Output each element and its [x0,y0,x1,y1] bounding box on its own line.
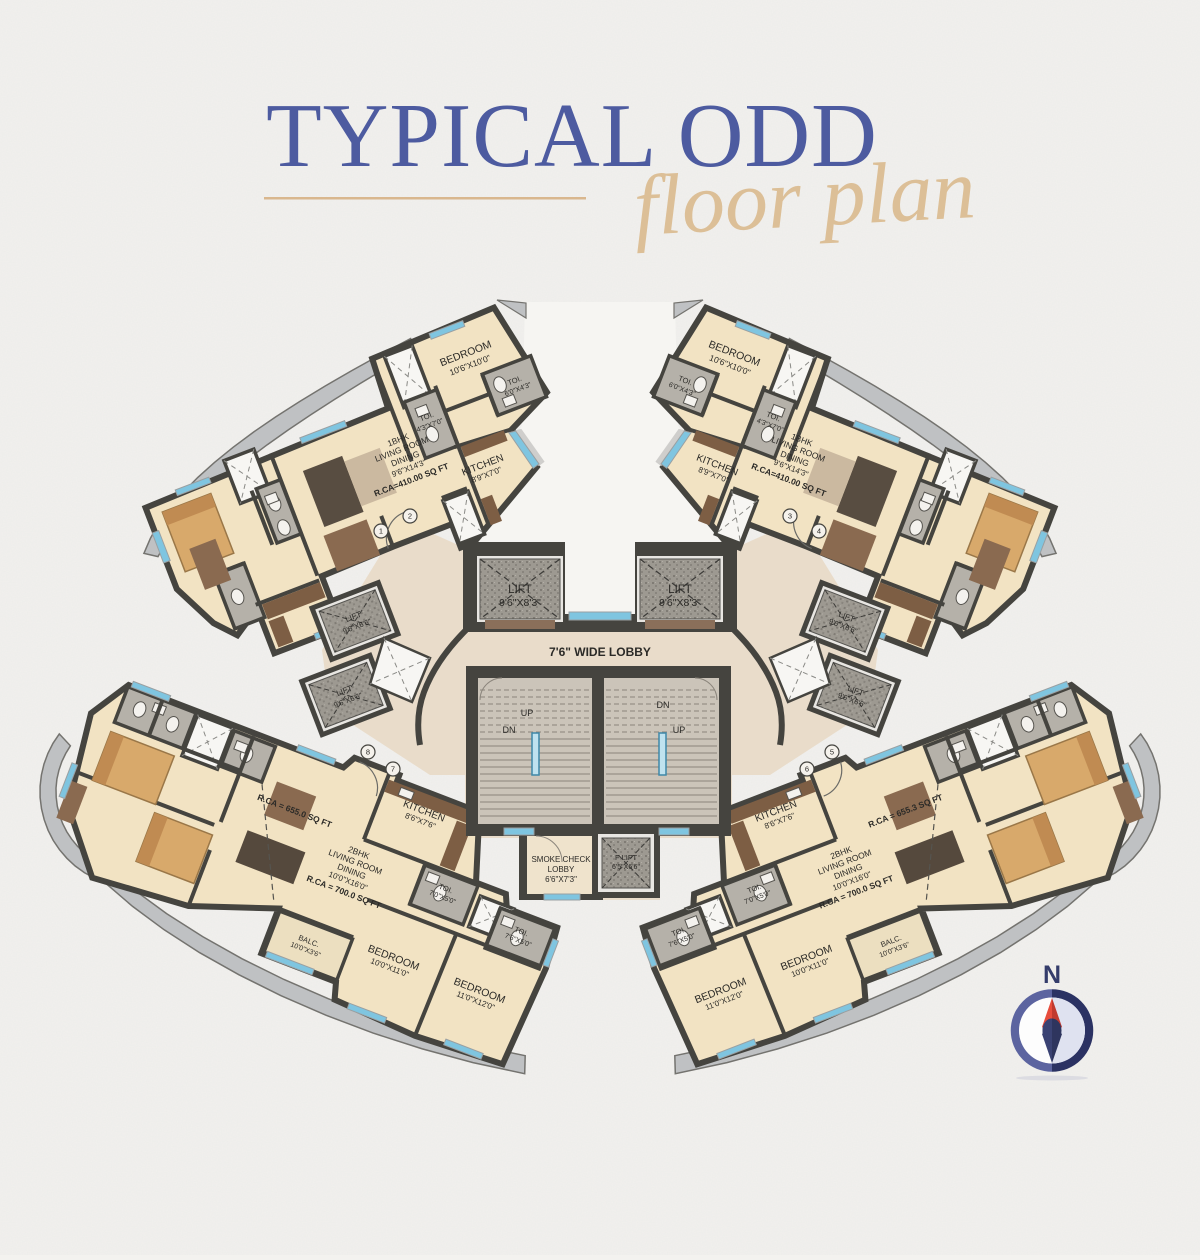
svg-text:3: 3 [788,512,792,521]
svg-text:SMOKE CHECK: SMOKE CHECK [531,855,591,864]
svg-text:UP: UP [521,708,534,718]
svg-text:2: 2 [408,512,412,521]
svg-text:5: 5 [830,748,834,757]
svg-text:LOBBY: LOBBY [548,865,575,874]
svg-text:7'6" WIDE LOBBY: 7'6" WIDE LOBBY [549,645,651,659]
svg-text:DN: DN [503,725,516,735]
svg-text:UP: UP [673,725,686,735]
svg-text:9'6"X8'3": 9'6"X8'3" [659,597,701,609]
svg-text:LIFT: LIFT [668,584,692,596]
svg-text:DN: DN [657,700,670,710]
svg-text:1: 1 [379,527,383,536]
svg-text:8: 8 [366,748,370,757]
svg-text:LIFT: LIFT [508,584,532,596]
svg-text:4: 4 [817,527,821,536]
svg-text:F LIFT: F LIFT [615,853,638,862]
svg-text:7: 7 [391,765,395,774]
svg-text:6'5"X6'6": 6'5"X6'6" [612,864,640,871]
svg-text:9'6"X8'3": 9'6"X8'3" [499,597,541,609]
svg-text:N: N [1043,961,1061,989]
svg-text:floor plan: floor plan [631,140,977,254]
svg-text:6'6"X7'3": 6'6"X7'3" [545,875,577,884]
svg-text:6: 6 [805,765,809,774]
